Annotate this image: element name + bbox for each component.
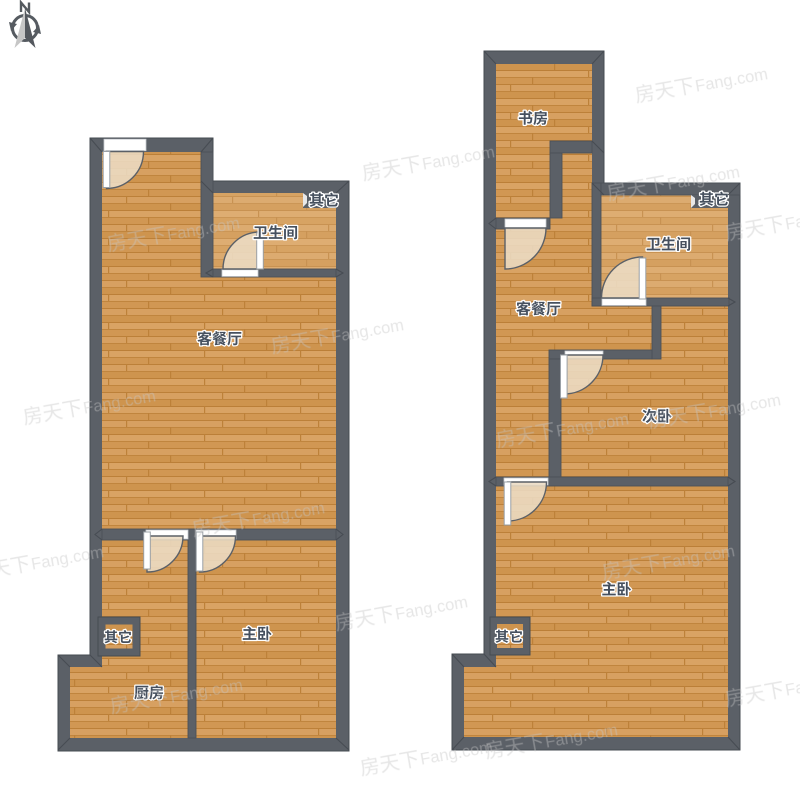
svg-text:Fang.com: Fang.com xyxy=(694,65,769,95)
svg-text:Fang.com: Fang.com xyxy=(394,593,469,623)
svg-text:Fang.com: Fang.com xyxy=(784,669,800,699)
svg-text:Fang.com: Fang.com xyxy=(784,203,800,233)
